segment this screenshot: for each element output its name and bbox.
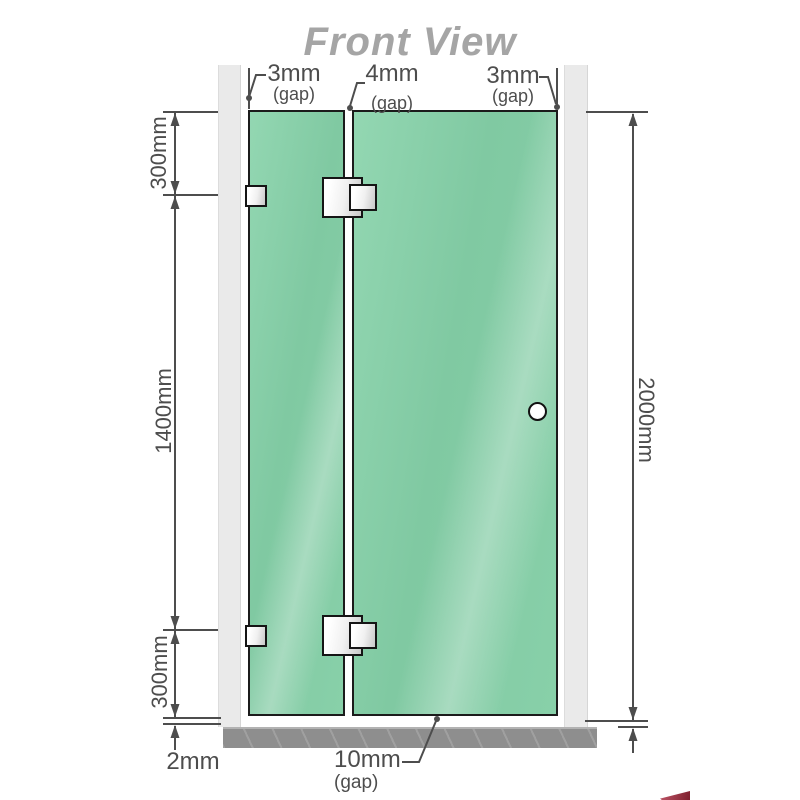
door-knob xyxy=(528,402,547,421)
gap-label-bottom: 10mm (gap) xyxy=(334,748,401,792)
dim-label-300mm-top: 300mm xyxy=(146,116,172,189)
gap-value: 4mm xyxy=(361,62,423,86)
hinge-bottom-plate-right xyxy=(349,622,377,649)
wall-channel-left xyxy=(218,65,241,727)
shower-base xyxy=(223,727,597,748)
gap-value: 3mm xyxy=(483,64,543,88)
wall-channel-right xyxy=(564,65,588,727)
gap-value: 10mm xyxy=(334,746,401,773)
gap-note: (gap) xyxy=(334,773,401,792)
wall-bracket-top xyxy=(245,185,267,207)
shower-screen-front-view-diagram: Front View xyxy=(0,0,800,800)
gap-label-top-left: 3mm (gap) xyxy=(263,62,325,103)
logo-fragment xyxy=(660,791,690,800)
diagram-title: Front View xyxy=(240,20,580,65)
gap-note: (gap) xyxy=(361,94,423,112)
dim-label-300mm-bottom: 300mm xyxy=(147,635,173,708)
dim-label-1400mm: 1400mm xyxy=(151,368,177,454)
hinge-top-plate-right xyxy=(349,184,377,211)
gap-note: (gap) xyxy=(483,87,543,105)
gap-label-top-center: 4mm (gap) xyxy=(361,62,423,112)
wall-bracket-bottom xyxy=(245,625,267,647)
gap-note: (gap) xyxy=(263,85,325,103)
dim-label-2mm: 2mm xyxy=(163,750,223,774)
dim-label-2000mm: 2000mm xyxy=(633,377,659,463)
gap-value: 3mm xyxy=(263,62,325,86)
glass-panel-door xyxy=(352,110,558,716)
gap-label-top-right: 3mm (gap) xyxy=(483,64,543,105)
